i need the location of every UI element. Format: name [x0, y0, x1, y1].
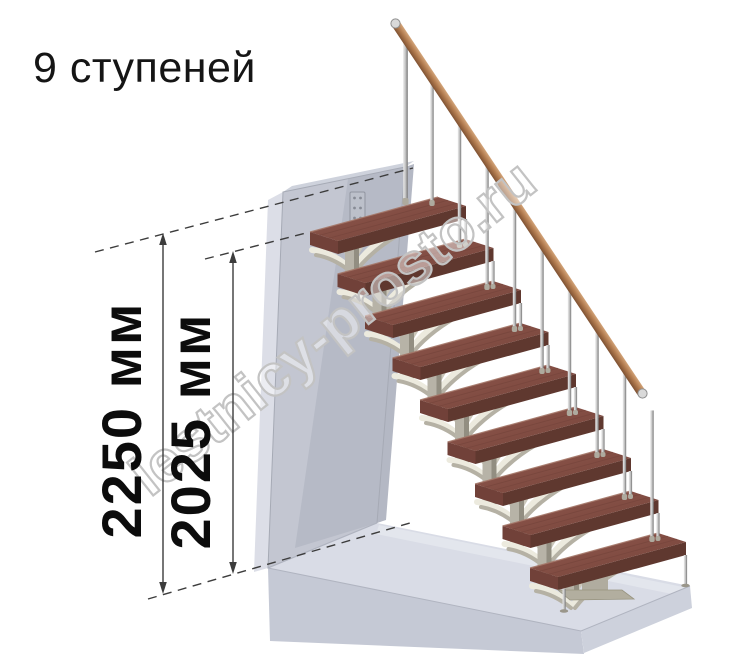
support-stub: [546, 345, 549, 372]
baluster-rod: [540, 246, 543, 372]
support-stub: [684, 555, 687, 584]
support-stub: [519, 303, 522, 330]
support-stub: [574, 387, 577, 414]
handrail-top-cap: [391, 19, 400, 28]
handrail-post: [403, 36, 408, 204]
front-leg: [563, 589, 566, 610]
staircase-diagram-page: lestnicy-prosto.ru 2250 мм 2025 мм 9 сту…: [0, 0, 743, 655]
page-title: 9 ступеней: [33, 44, 256, 92]
arrow-down-icon: [229, 562, 237, 574]
baluster-rod: [623, 369, 626, 498]
support-stub: [601, 429, 604, 456]
arrow-down-icon: [159, 582, 167, 594]
support-stub: [629, 471, 632, 498]
dimension-label-upper: 2025 мм: [159, 313, 222, 550]
support-stub: [656, 513, 659, 540]
arrow-up-icon: [229, 251, 237, 263]
dimension-label-total: 2250 мм: [90, 302, 153, 539]
baluster-rod: [595, 328, 598, 456]
baluster-rod: [568, 287, 571, 414]
baluster-rod: [430, 81, 433, 204]
handrail-end-cap: [638, 389, 647, 398]
baluster-rod: [650, 410, 653, 540]
staircase-diagram: lestnicy-prosto.ru 2250 мм 2025 мм 9 сту…: [0, 0, 743, 655]
support-stub: [491, 261, 494, 288]
base-plate: [558, 590, 634, 600]
